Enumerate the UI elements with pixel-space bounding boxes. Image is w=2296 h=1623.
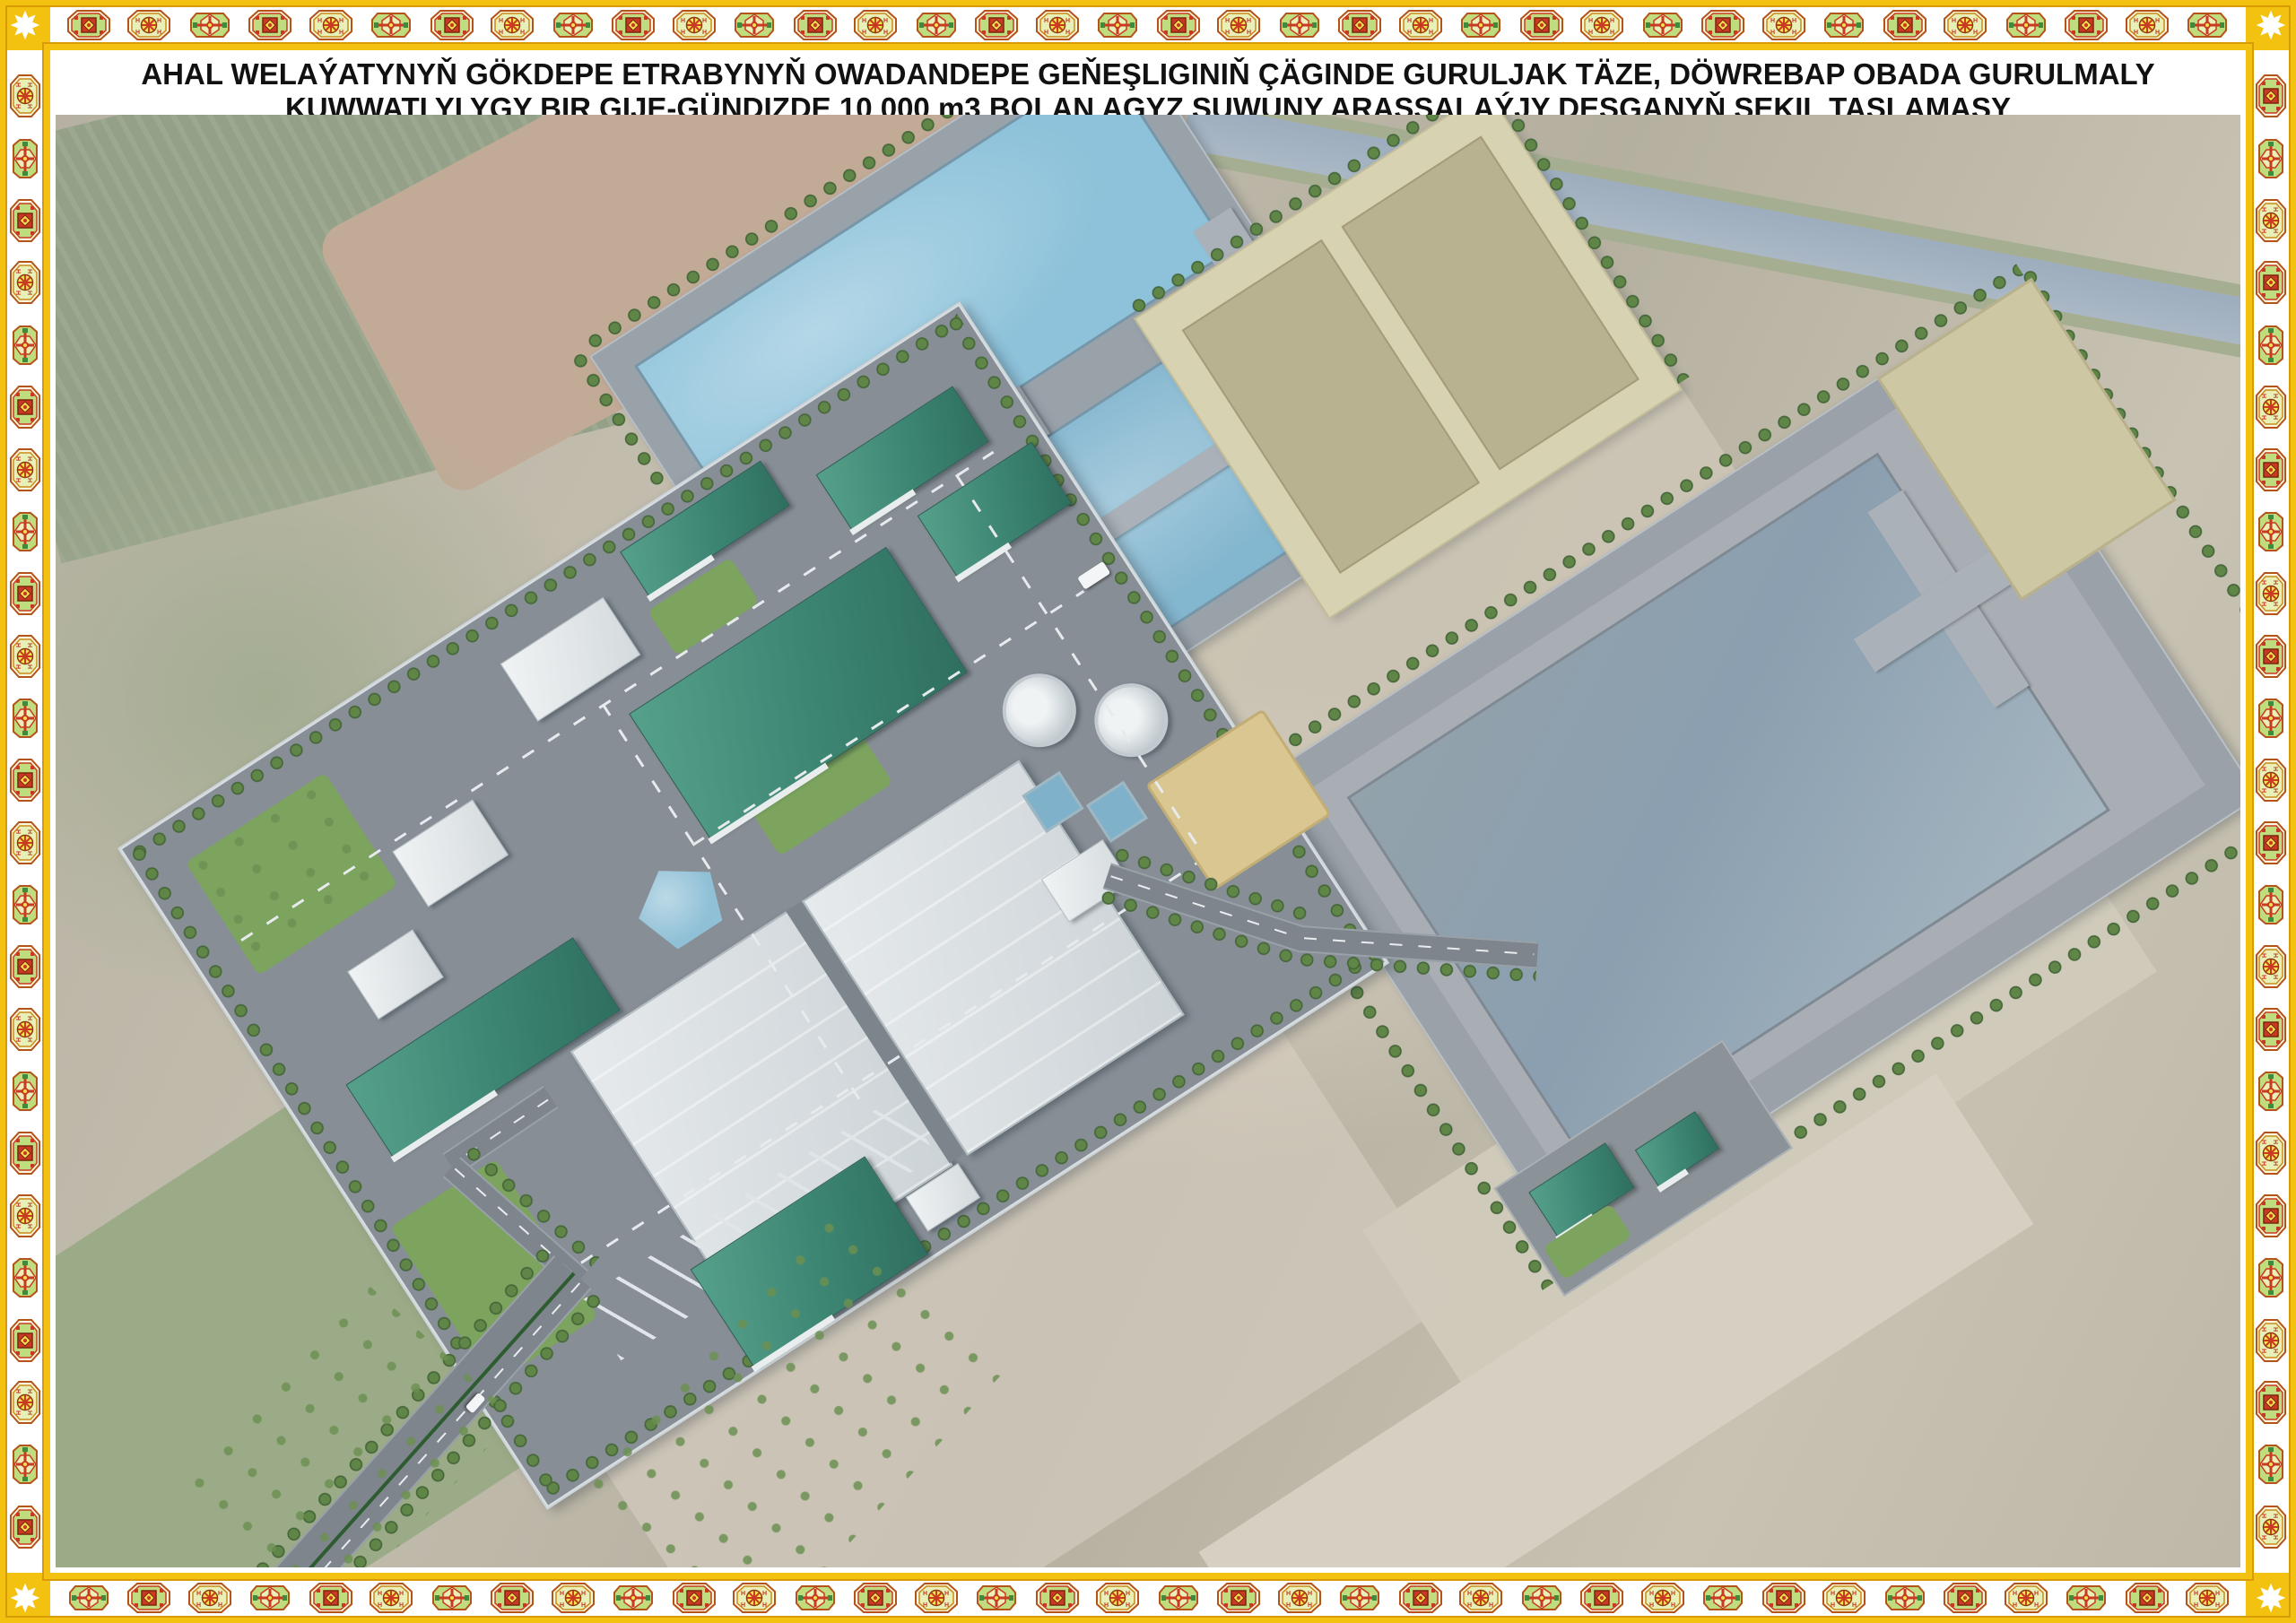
svg-text:H: H <box>26 1037 32 1042</box>
svg-text:H: H <box>1671 1591 1675 1597</box>
carpet-gul-motif-icon: H H H H <box>2255 1505 2287 1549</box>
carpet-gul-motif-icon <box>1519 1582 1564 1614</box>
carpet-gul-motif-icon: H H H H <box>1579 9 1624 41</box>
carpet-gul-motif-icon <box>974 1582 1019 1614</box>
svg-text:H: H <box>1407 30 1412 36</box>
carpet-gul-motif-icon <box>490 1582 535 1614</box>
carpet-gul-motif-icon <box>430 1582 474 1614</box>
carpet-gul-motif-icon <box>126 1582 171 1614</box>
carpet-gul-motif-icon <box>66 1582 111 1614</box>
svg-text:H: H <box>1286 1591 1291 1597</box>
carpet-gul-motif-icon <box>2255 882 2287 927</box>
carpet-gul-motif-icon: H H H H <box>9 1380 41 1425</box>
svg-text:H: H <box>681 18 685 24</box>
ornament-border-right: H H H H H H H H <box>2253 50 2289 1573</box>
svg-text:H: H <box>26 1016 32 1020</box>
carpet-gul-motif-icon <box>2255 323 2287 368</box>
svg-text:H: H <box>1467 1602 1472 1609</box>
svg-text:H: H <box>1831 1591 1835 1597</box>
carpet-gul-motif-icon <box>430 9 474 41</box>
svg-text:H: H <box>2260 415 2266 420</box>
svg-text:H: H <box>2272 1514 2278 1518</box>
eight-point-star-icon <box>2256 10 2286 40</box>
svg-text:H: H <box>1671 1602 1675 1609</box>
svg-text:H: H <box>1467 1591 1472 1597</box>
svg-text:H: H <box>14 829 21 834</box>
svg-text:H: H <box>2134 30 2138 36</box>
svg-text:H: H <box>2260 975 2266 979</box>
ornament-border-bottom: H H H H H H H H <box>50 1580 2246 1616</box>
svg-text:H: H <box>2272 767 2278 771</box>
carpet-gul-motif-icon <box>2125 1582 2170 1614</box>
carpet-gul-motif-icon: H H H H <box>9 1193 41 1238</box>
carpet-gul-motif-icon <box>187 9 232 41</box>
svg-text:H: H <box>14 664 21 669</box>
svg-text:H: H <box>14 1224 21 1228</box>
carpet-gul-motif-icon <box>2255 696 2287 741</box>
svg-text:H: H <box>862 30 866 36</box>
carpet-gul-motif-icon: H H H H <box>309 9 353 41</box>
carpet-gul-motif-icon: H H H H <box>2255 944 2287 989</box>
svg-text:H: H <box>14 1410 21 1415</box>
svg-text:H: H <box>14 478 21 482</box>
carpet-gul-motif-icon <box>1943 1582 1987 1614</box>
carpet-gul-motif-icon <box>2255 509 2287 554</box>
carpet-gul-motif-icon <box>9 198 41 243</box>
svg-text:H: H <box>923 1591 927 1597</box>
svg-text:H: H <box>26 664 32 669</box>
svg-text:H: H <box>883 30 888 36</box>
carpet-gul-motif-icon <box>2255 260 2287 305</box>
carpet-gul-motif-icon <box>914 9 959 41</box>
svg-text:H: H <box>2272 415 2278 420</box>
svg-text:H: H <box>2194 1602 2198 1609</box>
svg-text:H: H <box>1610 30 1614 36</box>
svg-text:H: H <box>2260 767 2266 771</box>
carpet-gul-motif-icon <box>248 9 292 41</box>
svg-text:H: H <box>26 291 32 295</box>
carpet-gul-motif-icon: H H H H <box>2185 1582 2230 1614</box>
carpet-gul-motif-icon: H H H H <box>187 1582 232 1614</box>
svg-text:H: H <box>157 18 161 24</box>
carpet-gul-motif-icon <box>1519 9 1564 41</box>
carpet-gul-motif-icon: H H H H <box>1277 1582 1322 1614</box>
carpet-gul-motif-icon: H H H H <box>9 447 41 492</box>
carpet-gul-motif-icon <box>9 1069 41 1114</box>
svg-text:H: H <box>14 269 21 273</box>
carpet-gul-motif-icon <box>1700 9 1745 41</box>
svg-text:H: H <box>1308 1602 1312 1609</box>
carpet-gul-motif-icon <box>9 323 41 368</box>
carpet-gul-motif-icon: H H H H <box>1035 9 1080 41</box>
carpet-gul-motif-icon <box>2255 1007 2287 1052</box>
svg-text:H: H <box>2272 1535 2278 1540</box>
svg-text:H: H <box>1952 30 1956 36</box>
carpet-gul-motif-icon <box>1156 9 1201 41</box>
carpet-gul-motif-icon <box>2255 1193 2287 1238</box>
carpet-gul-motif-icon <box>2255 1442 2287 1487</box>
svg-text:H: H <box>2260 229 2266 233</box>
svg-text:H: H <box>2272 1140 2278 1144</box>
carpet-gul-motif-icon <box>9 944 41 989</box>
carpet-gul-motif-icon: H H H H <box>732 1582 777 1614</box>
eight-point-star-icon <box>10 1583 40 1613</box>
svg-text:H: H <box>2260 953 2266 958</box>
svg-text:H: H <box>1429 30 1433 36</box>
carpet-gul-motif-icon <box>9 1318 41 1363</box>
carpet-gul-motif-icon <box>611 1582 656 1614</box>
carpet-gul-motif-icon: H H H H <box>2255 1131 2287 1176</box>
svg-text:H: H <box>14 1037 21 1042</box>
carpet-gul-motif-icon <box>2255 1255 2287 1300</box>
svg-text:H: H <box>26 82 32 87</box>
carpet-gul-motif-icon <box>1035 1582 1080 1614</box>
svg-text:H: H <box>1308 1591 1312 1597</box>
svg-text:H: H <box>2260 788 2266 793</box>
carpet-gul-motif-icon: H H H H <box>1095 1582 1140 1614</box>
svg-text:H: H <box>317 30 322 36</box>
svg-text:H: H <box>2260 207 2266 212</box>
svg-text:H: H <box>1065 18 1070 24</box>
svg-text:H: H <box>581 1591 586 1597</box>
carpet-gul-motif-icon: H H H H <box>1398 9 1443 41</box>
carpet-gul-motif-icon <box>9 1255 41 1300</box>
svg-text:H: H <box>1126 1591 1130 1597</box>
carpet-gul-motif-icon <box>9 882 41 927</box>
eight-point-star-icon <box>10 10 40 40</box>
svg-text:H: H <box>218 1591 222 1597</box>
svg-text:H: H <box>1649 1591 1654 1597</box>
svg-text:H: H <box>862 18 866 24</box>
carpet-gul-motif-icon <box>793 1582 838 1614</box>
carpet-gul-motif-icon: H H H H <box>672 9 717 41</box>
ornament-border-left: H H H H H H H H <box>7 50 43 1573</box>
svg-text:H: H <box>1225 18 1230 24</box>
eight-point-star-icon <box>2256 1583 2286 1613</box>
carpet-gul-motif-icon <box>1883 9 1927 41</box>
svg-text:H: H <box>702 18 707 24</box>
carpet-gul-motif-icon <box>2185 9 2230 41</box>
svg-text:H: H <box>1104 1591 1109 1597</box>
poster-content: AHAL WELAÝATYNYŇ GÖKDEPE ETRABYNYŇ OWADA… <box>50 50 2246 1573</box>
carpet-gul-motif-icon: H H H H <box>2255 198 2287 243</box>
svg-text:H: H <box>26 1202 32 1207</box>
svg-text:H: H <box>135 18 140 24</box>
carpet-gul-motif-icon <box>9 1131 41 1176</box>
svg-text:H: H <box>2272 602 2278 606</box>
svg-text:H: H <box>1104 1602 1109 1609</box>
carpet-gul-motif-icon <box>2255 136 2287 181</box>
svg-text:H: H <box>1247 18 1251 24</box>
carpet-gul-motif-icon <box>2064 1582 2109 1614</box>
svg-text:H: H <box>883 18 888 24</box>
carpet-gul-motif-icon <box>672 1582 717 1614</box>
svg-text:H: H <box>762 1591 767 1597</box>
carpet-gul-motif-icon: H H H H <box>126 9 171 41</box>
svg-text:H: H <box>339 18 344 24</box>
project-poster: H H H H H H H H <box>0 0 2296 1623</box>
svg-text:H: H <box>1407 18 1412 24</box>
svg-text:H: H <box>1852 1591 1857 1597</box>
svg-text:H: H <box>2272 1161 2278 1166</box>
carpet-gul-motif-icon <box>853 1582 898 1614</box>
carpet-gul-motif-icon <box>1700 1582 1745 1614</box>
svg-text:H: H <box>1588 30 1593 36</box>
svg-text:H: H <box>499 18 503 24</box>
carpet-gul-motif-icon: H H H H <box>2004 1582 2048 1614</box>
carpet-gul-motif-icon <box>2064 9 2109 41</box>
svg-text:H: H <box>26 643 32 647</box>
svg-text:H: H <box>2013 1591 2017 1597</box>
svg-text:H: H <box>2272 1327 2278 1332</box>
svg-text:H: H <box>2155 30 2160 36</box>
svg-text:H: H <box>1044 18 1048 24</box>
svg-text:H: H <box>2272 229 2278 233</box>
carpet-gul-motif-icon <box>2255 634 2287 679</box>
carpet-gul-motif-icon <box>1883 1582 1927 1614</box>
svg-text:H: H <box>2260 580 2266 585</box>
carpet-gul-motif-icon: H H H H <box>2255 1318 2287 1363</box>
svg-text:H: H <box>1286 1602 1291 1609</box>
svg-text:H: H <box>944 1591 949 1597</box>
carpet-gul-motif-icon <box>9 758 41 803</box>
carpet-gul-motif-icon: H H H H <box>9 820 41 865</box>
svg-text:H: H <box>741 1602 745 1609</box>
svg-text:H: H <box>26 1389 32 1393</box>
svg-text:H: H <box>1770 30 1775 36</box>
svg-text:H: H <box>2260 1161 2266 1166</box>
carpet-gul-motif-icon <box>9 509 41 554</box>
svg-text:H: H <box>2260 1535 2266 1540</box>
carpet-gul-motif-icon: H H H H <box>9 74 41 118</box>
svg-text:H: H <box>2034 1602 2039 1609</box>
svg-text:H: H <box>378 1591 382 1597</box>
svg-text:H: H <box>26 851 32 855</box>
svg-text:H: H <box>1044 30 1048 36</box>
svg-text:H: H <box>1065 30 1070 36</box>
svg-text:H: H <box>2155 18 2160 24</box>
carpet-gul-motif-icon: H H H H <box>1761 9 1806 41</box>
svg-text:H: H <box>1489 1591 1493 1597</box>
svg-text:H: H <box>1973 30 1978 36</box>
svg-text:H: H <box>2260 1140 2266 1144</box>
svg-text:H: H <box>741 1591 745 1597</box>
svg-text:H: H <box>399 1591 404 1597</box>
east-access-road-2 <box>1300 937 1537 953</box>
carpet-gul-motif-icon <box>248 1582 292 1614</box>
svg-text:H: H <box>339 30 344 36</box>
carpet-gul-motif-icon: H H H H <box>1943 9 1987 41</box>
svg-text:H: H <box>1126 1602 1130 1609</box>
carpet-gul-motif-icon <box>2255 447 2287 492</box>
svg-text:H: H <box>2215 1602 2220 1609</box>
carpet-gul-motif-icon <box>9 571 41 616</box>
carpet-gul-motif-icon <box>9 385 41 430</box>
svg-text:H: H <box>2272 953 2278 958</box>
carpet-gul-motif-icon <box>66 9 111 41</box>
svg-text:H: H <box>2260 1327 2266 1332</box>
svg-text:H: H <box>1770 18 1775 24</box>
svg-text:H: H <box>1852 1602 1857 1609</box>
svg-text:H: H <box>2272 580 2278 585</box>
carpet-gul-motif-icon <box>974 9 1019 41</box>
svg-text:H: H <box>196 1591 201 1597</box>
carpet-gul-motif-icon <box>1822 9 1866 41</box>
svg-text:H: H <box>2194 1591 2198 1597</box>
svg-text:H: H <box>1610 18 1614 24</box>
svg-text:H: H <box>2215 1591 2220 1597</box>
svg-text:H: H <box>560 1602 564 1609</box>
ornament-border-top: H H H H H H H H <box>50 7 2246 43</box>
carpet-gul-motif-icon <box>1095 9 1140 41</box>
carpet-gul-motif-icon: H H H H <box>1216 9 1261 41</box>
carpet-gul-motif-icon <box>1216 1582 1261 1614</box>
svg-text:H: H <box>196 1602 201 1609</box>
carpet-gul-motif-icon: H H H H <box>551 1582 596 1614</box>
svg-text:H: H <box>26 269 32 273</box>
svg-text:H: H <box>14 291 21 295</box>
carpet-gul-motif-icon <box>551 9 596 41</box>
svg-text:H: H <box>1792 30 1796 36</box>
carpet-gul-motif-icon <box>1579 1582 1624 1614</box>
carpet-gul-motif-icon <box>1277 9 1322 41</box>
svg-text:H: H <box>681 30 685 36</box>
svg-text:H: H <box>520 30 525 36</box>
carpet-gul-motif-icon <box>1640 9 1685 41</box>
carpet-gul-motif-icon <box>1337 1582 1382 1614</box>
svg-text:H: H <box>26 104 32 108</box>
carpet-gul-motif-icon <box>2255 1380 2287 1425</box>
carpet-gul-motif-icon <box>9 696 41 741</box>
svg-text:H: H <box>581 1602 586 1609</box>
carpet-gul-motif-icon: H H H H <box>853 9 898 41</box>
carpet-gul-motif-icon <box>1458 9 1503 41</box>
carpet-gul-motif-icon: H H H H <box>369 1582 413 1614</box>
svg-text:H: H <box>399 1602 404 1609</box>
svg-text:H: H <box>378 1602 382 1609</box>
svg-text:H: H <box>2134 18 2138 24</box>
carpet-gul-motif-icon <box>1337 9 1382 41</box>
carpet-gul-motif-icon <box>793 9 838 41</box>
svg-text:H: H <box>2260 1514 2266 1518</box>
svg-text:H: H <box>1952 18 1956 24</box>
carpet-gul-motif-icon <box>2255 74 2287 118</box>
svg-text:H: H <box>14 82 21 87</box>
svg-text:H: H <box>1429 18 1433 24</box>
carpet-gul-motif-icon <box>9 1505 41 1549</box>
svg-text:H: H <box>762 1602 767 1609</box>
aerial-site-render <box>56 115 2240 1567</box>
carpet-gul-motif-icon: H H H H <box>1458 1582 1503 1614</box>
svg-text:H: H <box>14 104 21 108</box>
carpet-gul-motif-icon: H H H H <box>2255 385 2287 430</box>
svg-text:H: H <box>2272 975 2278 979</box>
svg-text:H: H <box>2272 394 2278 398</box>
svg-text:H: H <box>157 30 161 36</box>
svg-text:H: H <box>2034 1591 2039 1597</box>
svg-text:H: H <box>560 1591 564 1597</box>
carpet-gul-motif-icon: H H H H <box>490 9 535 41</box>
svg-text:H: H <box>1792 18 1796 24</box>
svg-text:H: H <box>1247 30 1251 36</box>
svg-text:H: H <box>26 456 32 461</box>
svg-text:H: H <box>26 1224 32 1228</box>
svg-text:H: H <box>2272 788 2278 793</box>
svg-text:H: H <box>317 18 322 24</box>
svg-text:H: H <box>702 30 707 36</box>
svg-text:H: H <box>1831 1602 1835 1609</box>
carpet-gul-motif-icon <box>1761 1582 1806 1614</box>
carpet-gul-motif-icon: H H H H <box>2125 9 2170 41</box>
carpet-gul-motif-icon <box>2004 9 2048 41</box>
svg-text:H: H <box>135 30 140 36</box>
svg-text:H: H <box>14 1202 21 1207</box>
carpet-gul-motif-icon <box>2255 820 2287 865</box>
svg-text:H: H <box>2260 1349 2266 1353</box>
svg-text:H: H <box>1225 30 1230 36</box>
svg-text:H: H <box>26 478 32 482</box>
svg-text:H: H <box>14 456 21 461</box>
carpet-gul-motif-icon <box>9 136 41 181</box>
carpet-gul-motif-icon <box>9 1442 41 1487</box>
carpet-gul-motif-icon <box>2255 1069 2287 1114</box>
svg-text:H: H <box>2260 394 2266 398</box>
svg-text:H: H <box>26 1410 32 1415</box>
carpet-gul-motif-icon: H H H H <box>1822 1582 1866 1614</box>
svg-text:H: H <box>14 643 21 647</box>
svg-text:H: H <box>944 1602 949 1609</box>
svg-text:H: H <box>2260 602 2266 606</box>
carpet-gul-motif-icon: H H H H <box>1640 1582 1685 1614</box>
svg-text:H: H <box>2013 1602 2017 1609</box>
carpet-gul-motif-icon: H H H H <box>2255 571 2287 616</box>
svg-text:H: H <box>14 1016 21 1020</box>
svg-text:H: H <box>520 18 525 24</box>
carpet-gul-motif-icon: H H H H <box>9 634 41 679</box>
svg-text:H: H <box>499 30 503 36</box>
svg-text:H: H <box>1588 18 1593 24</box>
svg-text:H: H <box>2272 207 2278 212</box>
carpet-gul-motif-icon <box>369 9 413 41</box>
carpet-gul-motif-icon <box>1398 1582 1443 1614</box>
carpet-gul-motif-icon: H H H H <box>9 260 41 305</box>
carpet-gul-motif-icon <box>309 1582 353 1614</box>
svg-text:H: H <box>14 851 21 855</box>
carpet-gul-motif-icon <box>1156 1582 1201 1614</box>
title-line-1: AHAL WELAÝATYNYŇ GÖKDEPE ETRABYNYŇ OWADA… <box>104 57 2192 91</box>
svg-text:H: H <box>1973 18 1978 24</box>
carpet-gul-motif-icon: H H H H <box>2255 758 2287 803</box>
svg-text:H: H <box>923 1602 927 1609</box>
svg-text:H: H <box>1489 1602 1493 1609</box>
svg-text:H: H <box>14 1389 21 1393</box>
carpet-gul-motif-icon <box>611 9 656 41</box>
svg-text:H: H <box>2272 1349 2278 1353</box>
carpet-gul-motif-icon: H H H H <box>9 1007 41 1052</box>
carpet-gul-motif-icon: H H H H <box>914 1582 959 1614</box>
svg-text:H: H <box>1649 1602 1654 1609</box>
carpet-gul-motif-icon <box>732 9 777 41</box>
svg-text:H: H <box>218 1602 222 1609</box>
svg-text:H: H <box>26 829 32 834</box>
